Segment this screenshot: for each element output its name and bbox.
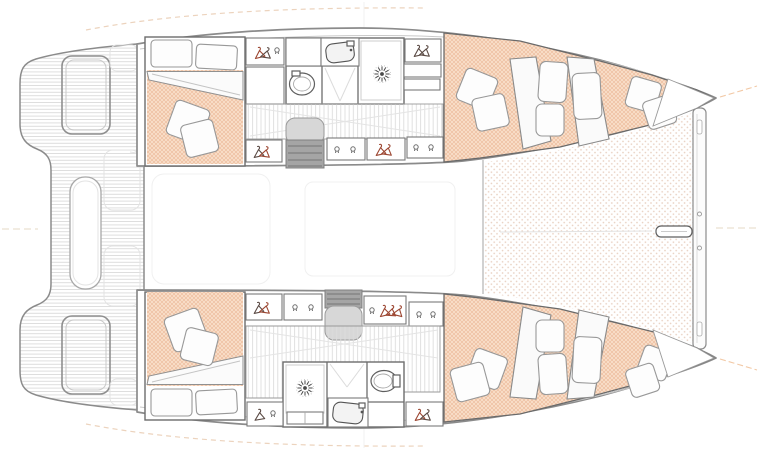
- wardrobe-cabinet: [246, 294, 282, 320]
- wardrobe-cabinet: [367, 138, 405, 160]
- cabin-port-aft: [145, 37, 245, 166]
- hook-cabinet: [284, 294, 322, 320]
- pillow: [572, 336, 602, 383]
- cockpit-table: [70, 177, 101, 289]
- wardrobe-starboard-forward: [406, 402, 443, 426]
- pillow: [151, 40, 192, 67]
- locker-starboard-aft-outboard: [247, 402, 283, 426]
- faucet: [347, 41, 354, 46]
- vanity-counter: [286, 38, 321, 66]
- pillow: [536, 104, 564, 136]
- wardrobe-cabinet: [405, 39, 441, 62]
- beam-cleat-upper: [697, 120, 702, 134]
- saloon-faint-outline: [152, 160, 483, 294]
- faucet-dot: [350, 49, 353, 52]
- beam-fitting-upper: [698, 212, 702, 216]
- hook-cabinet: [327, 138, 365, 160]
- wardrobe-port-forward: [404, 39, 441, 90]
- faucet-dot: [361, 411, 364, 414]
- pillow: [536, 320, 564, 352]
- throw-pillow: [179, 327, 219, 367]
- pillow: [538, 353, 569, 395]
- faucet: [359, 403, 365, 408]
- steps-port: [286, 118, 324, 168]
- bathroom-starboard: [283, 362, 404, 427]
- beam-fitting-lower: [698, 246, 702, 250]
- pillow: [151, 389, 192, 416]
- wardrobe-cabinet: [246, 140, 282, 162]
- bathroom-port: [286, 38, 404, 104]
- wardrobe-cabinet: [406, 402, 443, 426]
- saloon-table-outline: [305, 182, 455, 276]
- steps-treads-block: [286, 140, 324, 168]
- shelf-cabinet: [404, 79, 440, 90]
- dresser-cabinet: [246, 67, 284, 104]
- pillow: [538, 61, 569, 103]
- bow-rigging-dash-upper: [720, 86, 757, 97]
- toilet-flush: [292, 71, 300, 76]
- pillow: [572, 72, 602, 119]
- pillow: [195, 44, 237, 70]
- pillow: [195, 389, 237, 415]
- cabin-starboard-aft: [145, 292, 245, 420]
- throw-pillow: [180, 118, 220, 158]
- throw-pillow: [471, 93, 510, 132]
- wardrobe-port-aft: [246, 38, 284, 104]
- forward-crossbeam: [693, 108, 706, 349]
- corridor-port: [246, 104, 443, 139]
- bow-rigging-dash-lower: [720, 359, 757, 370]
- upper-guide-arc: [86, 8, 424, 30]
- hook-cabinet: [247, 402, 283, 426]
- shelf-cabinet: [404, 64, 441, 77]
- beam-cleat-lower: [697, 322, 702, 336]
- locker-row-port-inboard: [246, 137, 443, 162]
- saloon-settee-outline: [152, 174, 270, 284]
- hook-cabinet: [407, 137, 443, 158]
- hook-cabinet: [409, 302, 443, 326]
- catamaran-floor-plan: [0, 0, 760, 450]
- toilet-flush: [393, 375, 400, 387]
